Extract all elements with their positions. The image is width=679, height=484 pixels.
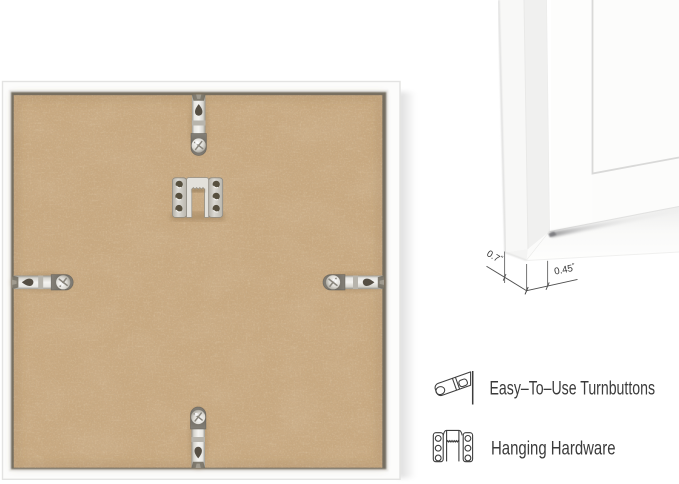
svg-text:Hanging Hardware: Hanging Hardware xyxy=(491,439,616,460)
svg-text:Easy–To–Use Turnbuttons: Easy–To–Use Turnbuttons xyxy=(490,379,656,400)
